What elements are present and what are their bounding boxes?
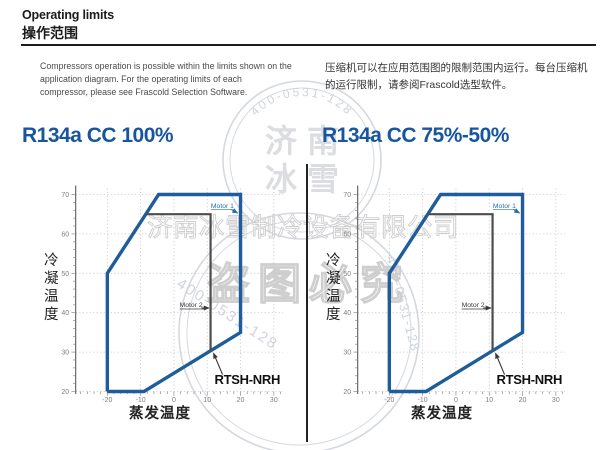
x-tick-label: 0 <box>172 397 176 404</box>
motor-2-label: Motor 2 <box>462 302 485 309</box>
y-tick-label: 40 <box>343 310 351 317</box>
x-tick-label: 20 <box>519 397 527 404</box>
x-tick-label: 10 <box>203 397 211 404</box>
x-tick-label: -20 <box>384 397 394 404</box>
header-rule <box>21 44 596 46</box>
watermark-stamp-char: 济 <box>265 123 298 159</box>
x-tick-label: -20 <box>102 397 112 404</box>
motor-2-limit <box>146 214 211 351</box>
x-tick-label: 30 <box>552 397 560 404</box>
catalog-page: 400-0531-128济南冰雪400-0531-128400-0531-128… <box>0 0 600 450</box>
y-tick-label: 40 <box>61 310 69 317</box>
y-tick-label: 30 <box>343 350 351 357</box>
x-axis-label: 蒸发温度 <box>129 404 191 422</box>
chart-r134a-75-50: 203040506070-20-100102030冷凝温度蒸发温度Motor 1… <box>302 172 577 430</box>
intro-paragraph-zh: 压缩机可以在应用范围图的限制范围内运行。每台压缩机的运行限制，请参阅Frasco… <box>325 60 589 95</box>
model-label: RTSH-NRH <box>215 372 280 387</box>
y-tick-label: 20 <box>343 389 351 396</box>
y-tick-label: 20 <box>61 389 69 396</box>
x-tick-label: 30 <box>270 397 278 404</box>
y-tick-label: 30 <box>61 350 69 357</box>
chart-r134a-100: 203040506070-20-100102030冷凝温度蒸发温度Motor 1… <box>20 172 295 430</box>
x-tick-label: 10 <box>485 397 493 404</box>
x-tick-label: 0 <box>454 397 458 404</box>
motor-2-limit <box>428 214 493 351</box>
y-tick-label: 70 <box>61 192 69 199</box>
page-title-en: Operating limits <box>22 9 114 22</box>
chart-title-r134a-100: R134a CC 100% <box>22 124 173 148</box>
y-axis-label: 冷凝温度 <box>326 252 342 323</box>
x-axis-label: 蒸发温度 <box>411 404 473 422</box>
motor-1-label: Motor 1 <box>493 203 516 210</box>
x-tick-label: -10 <box>136 397 146 404</box>
y-axis-label: 冷凝温度 <box>44 252 60 323</box>
y-tick-label: 70 <box>343 192 351 199</box>
x-tick-label: -10 <box>418 397 428 404</box>
model-label: RTSH-NRH <box>497 372 562 387</box>
y-tick-label: 50 <box>61 271 69 278</box>
chart-title-r134a-75-50: R134a CC 75%-50% <box>322 124 509 148</box>
page-title-zh: 操作范围 <box>22 23 78 43</box>
motor-2-label: Motor 2 <box>180 302 203 309</box>
intro-paragraph-en: Compressors operation is possible within… <box>40 60 292 100</box>
motor-1-label: Motor 1 <box>211 203 234 210</box>
x-tick-label: 20 <box>237 397 245 404</box>
y-tick-label: 60 <box>343 231 351 238</box>
y-tick-label: 50 <box>343 271 351 278</box>
y-tick-label: 60 <box>61 231 69 238</box>
